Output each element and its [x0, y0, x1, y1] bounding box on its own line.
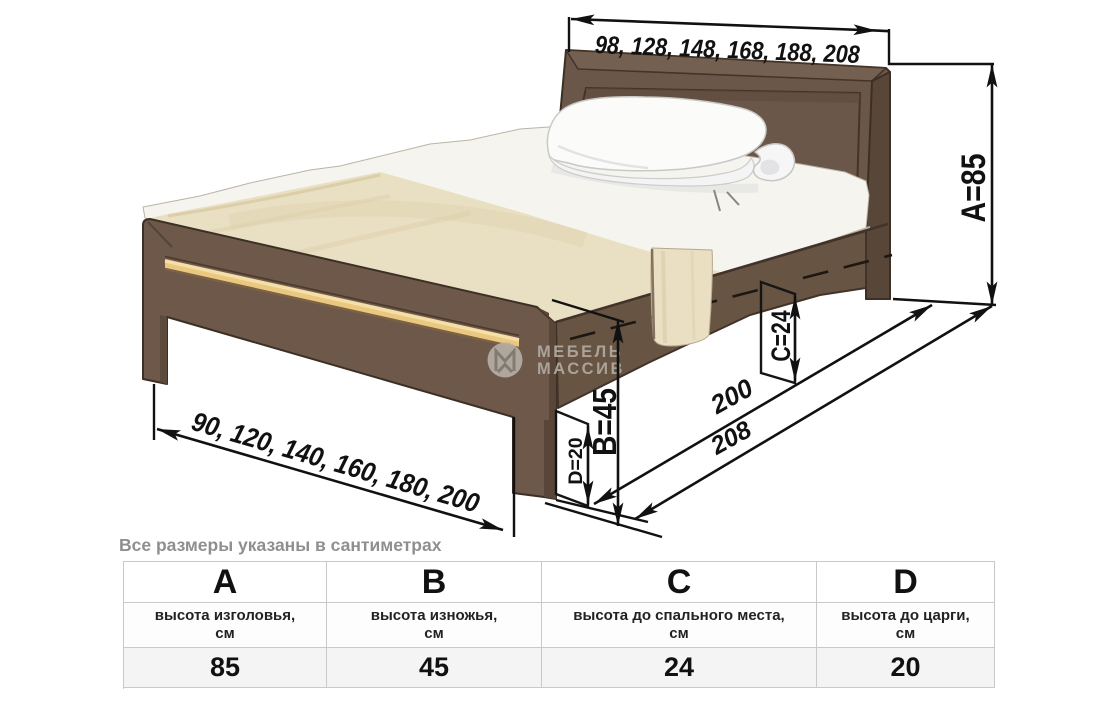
- svg-text:А=85: А=85: [955, 153, 993, 222]
- svg-text:D=20: D=20: [565, 437, 587, 484]
- svg-text:208: 208: [705, 416, 756, 461]
- svg-text:МАССИВ: МАССИВ: [537, 360, 625, 378]
- svg-text:С=24: С=24: [767, 310, 797, 362]
- svg-text:В=45: В=45: [587, 388, 624, 456]
- svg-text:90, 120, 140, 160, 180, 200: 90, 120, 140, 160, 180, 200: [188, 406, 482, 518]
- svg-text:МЕБЕЛЬ: МЕБЕЛЬ: [537, 343, 623, 361]
